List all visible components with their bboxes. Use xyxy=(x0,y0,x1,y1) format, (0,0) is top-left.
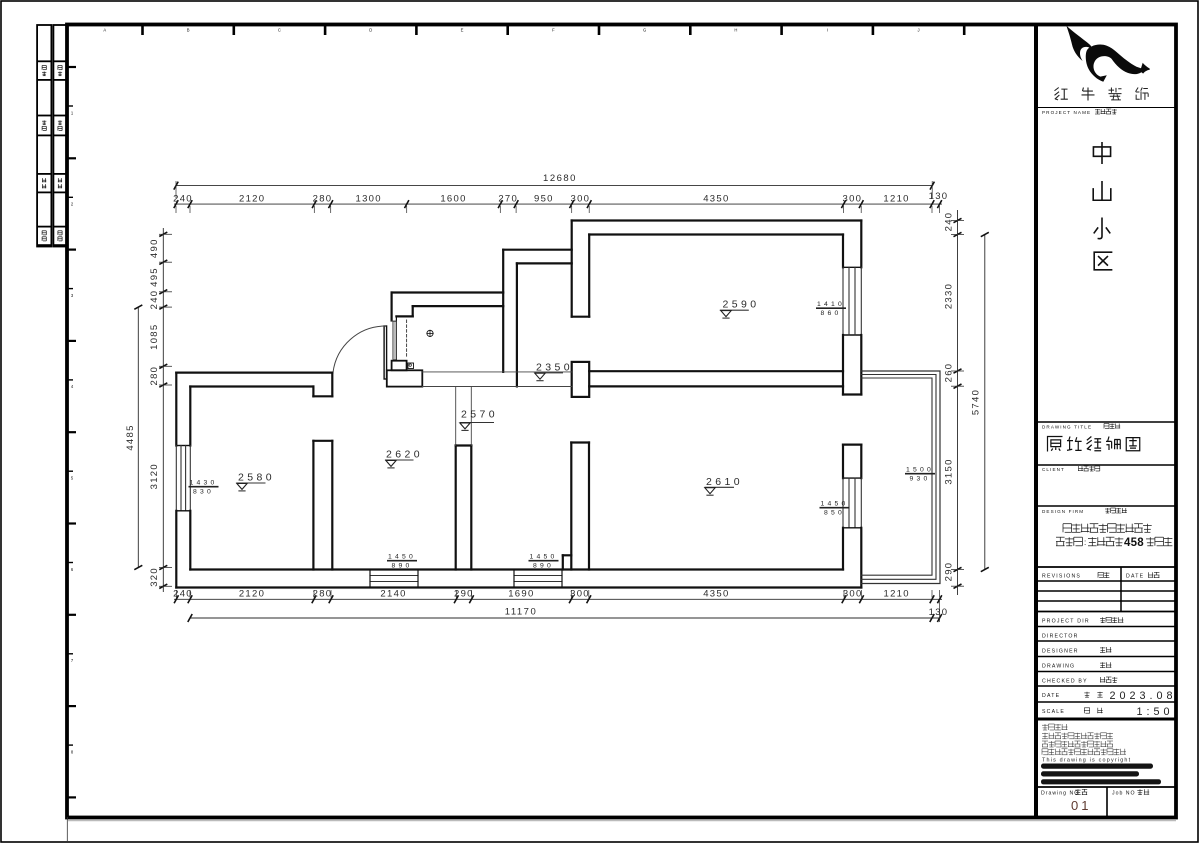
svg-text:DESIGN FIRM: DESIGN FIRM xyxy=(1042,509,1084,514)
svg-text:DESIGNER: DESIGNER xyxy=(1042,648,1079,654)
svg-text:1430: 1430 xyxy=(190,480,218,487)
svg-text:12680: 12680 xyxy=(543,173,577,184)
svg-text:This drawing is copyright: This drawing is copyright xyxy=(1042,758,1131,764)
svg-text:B: B xyxy=(187,28,190,33)
svg-text:240: 240 xyxy=(173,589,193,600)
svg-text:REVISIONS: REVISIONS xyxy=(1042,574,1081,580)
svg-text:DRAWING TITLE: DRAWING TITLE xyxy=(1042,425,1092,430)
svg-text:950: 950 xyxy=(534,194,554,205)
svg-text:130: 130 xyxy=(929,191,949,202)
svg-text:DRAWING: DRAWING xyxy=(1042,664,1075,670)
svg-text:3120: 3120 xyxy=(149,463,160,489)
svg-text:240: 240 xyxy=(149,290,160,310)
svg-text:2580: 2580 xyxy=(238,472,275,484)
svg-text:1690: 1690 xyxy=(508,589,534,600)
svg-text:Drawing NO: Drawing NO xyxy=(1041,791,1079,797)
svg-text:2 0 2 3 . 0 8: 2 0 2 3 . 0 8 xyxy=(1109,690,1173,702)
svg-text:1300: 1300 xyxy=(356,194,382,205)
svg-text:1450: 1450 xyxy=(388,554,416,561)
svg-text:F: F xyxy=(552,28,555,33)
svg-text:280: 280 xyxy=(313,589,333,600)
svg-text:320: 320 xyxy=(149,567,160,587)
svg-text:1210: 1210 xyxy=(883,194,909,205)
svg-text:280: 280 xyxy=(313,194,333,205)
svg-text:495: 495 xyxy=(149,267,160,287)
svg-text:270: 270 xyxy=(498,194,518,205)
svg-text:890: 890 xyxy=(533,563,554,570)
svg-text:2570: 2570 xyxy=(461,409,498,421)
svg-text:130: 130 xyxy=(929,607,949,618)
svg-text:4350: 4350 xyxy=(703,589,729,600)
svg-text:A: A xyxy=(103,28,106,33)
svg-text:490: 490 xyxy=(149,238,160,258)
svg-text:890: 890 xyxy=(392,563,413,570)
svg-text:290: 290 xyxy=(454,589,474,600)
svg-text:Job NO: Job NO xyxy=(1112,791,1136,797)
svg-text:300: 300 xyxy=(843,194,863,205)
svg-text:2620: 2620 xyxy=(386,448,423,460)
svg-text::: : xyxy=(1084,538,1086,547)
svg-text:DATE: DATE xyxy=(1042,693,1060,699)
svg-text:1450: 1450 xyxy=(821,501,849,508)
svg-text:1450: 1450 xyxy=(530,554,558,561)
svg-text:1 : 5 0: 1 : 5 0 xyxy=(1136,706,1170,718)
svg-text:5740: 5740 xyxy=(971,389,982,415)
svg-text:290: 290 xyxy=(944,562,955,582)
svg-text:G: G xyxy=(643,28,646,33)
svg-text:280: 280 xyxy=(149,366,160,386)
svg-text:1600: 1600 xyxy=(440,194,466,205)
svg-text:SCALE: SCALE xyxy=(1042,709,1065,715)
svg-text:DIRECTOR: DIRECTOR xyxy=(1042,633,1079,639)
svg-text:2140: 2140 xyxy=(380,589,406,600)
svg-text:2330: 2330 xyxy=(944,283,955,309)
svg-text:830: 830 xyxy=(193,489,214,496)
svg-text:930: 930 xyxy=(910,476,931,483)
svg-text:PROJECT DIR: PROJECT DIR xyxy=(1042,619,1090,625)
svg-text:2120: 2120 xyxy=(239,589,265,600)
svg-text:300: 300 xyxy=(570,589,590,600)
svg-text:11170: 11170 xyxy=(505,607,538,618)
svg-text:300: 300 xyxy=(843,589,863,600)
svg-text:860: 860 xyxy=(821,310,842,317)
svg-text:850: 850 xyxy=(824,510,845,517)
svg-text:I: I xyxy=(827,28,828,33)
svg-text:3150: 3150 xyxy=(944,458,955,484)
svg-text:1210: 1210 xyxy=(884,589,910,600)
svg-text:CHECKED BY: CHECKED BY xyxy=(1042,678,1088,684)
svg-text:J: J xyxy=(918,28,920,33)
svg-text:260: 260 xyxy=(944,363,955,383)
svg-text:2350: 2350 xyxy=(536,362,573,374)
svg-text:C: C xyxy=(278,28,281,33)
svg-text:CLIENT: CLIENT xyxy=(1042,467,1065,472)
svg-text:2590: 2590 xyxy=(723,299,760,311)
svg-text:458: 458 xyxy=(1124,537,1144,549)
svg-text:240: 240 xyxy=(173,194,193,205)
svg-text:01: 01 xyxy=(1071,798,1091,813)
svg-text:240: 240 xyxy=(944,212,955,232)
svg-text:DATE: DATE xyxy=(1126,574,1144,580)
svg-text:H: H xyxy=(734,28,737,33)
svg-text:2610: 2610 xyxy=(706,476,743,488)
svg-text:E: E xyxy=(461,28,464,33)
svg-text:4485: 4485 xyxy=(125,424,136,450)
svg-text:1410: 1410 xyxy=(817,301,845,308)
svg-text:1085: 1085 xyxy=(149,324,160,350)
svg-text:PROJECT NAME: PROJECT NAME xyxy=(1042,110,1091,115)
svg-text:300: 300 xyxy=(571,194,591,205)
svg-text:D: D xyxy=(369,28,372,33)
svg-text:1500: 1500 xyxy=(906,467,934,474)
svg-text:4350: 4350 xyxy=(703,194,729,205)
svg-text:2120: 2120 xyxy=(239,194,265,205)
